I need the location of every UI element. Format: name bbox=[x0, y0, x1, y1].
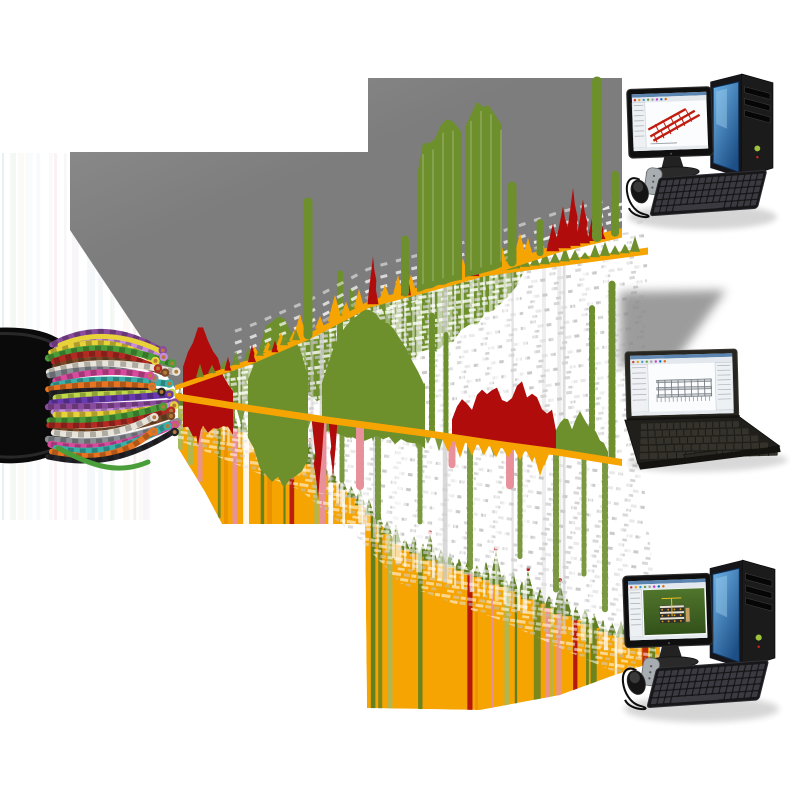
computer-tower bbox=[710, 560, 775, 668]
cad-application-screen bbox=[632, 92, 708, 151]
cad-green-site-model bbox=[643, 588, 706, 635]
cable-to-computers-illustration bbox=[0, 0, 800, 800]
wire-bundle bbox=[48, 332, 176, 469]
cad-tree-panel bbox=[632, 102, 646, 147]
cad-application-screen bbox=[628, 579, 708, 641]
power-button bbox=[756, 635, 762, 641]
power-button bbox=[754, 145, 760, 151]
cad-tree-panel bbox=[628, 590, 643, 637]
laptop-computer bbox=[623, 348, 788, 474]
keyboard bbox=[650, 170, 767, 216]
monitor bbox=[627, 87, 714, 180]
multi-wire-cable bbox=[0, 328, 181, 469]
keyboard bbox=[647, 660, 769, 707]
illustration-canvas bbox=[0, 0, 800, 800]
desktop-computer-top bbox=[627, 74, 777, 230]
desktop-computer-bottom bbox=[623, 560, 779, 722]
computer-tower bbox=[710, 74, 773, 178]
